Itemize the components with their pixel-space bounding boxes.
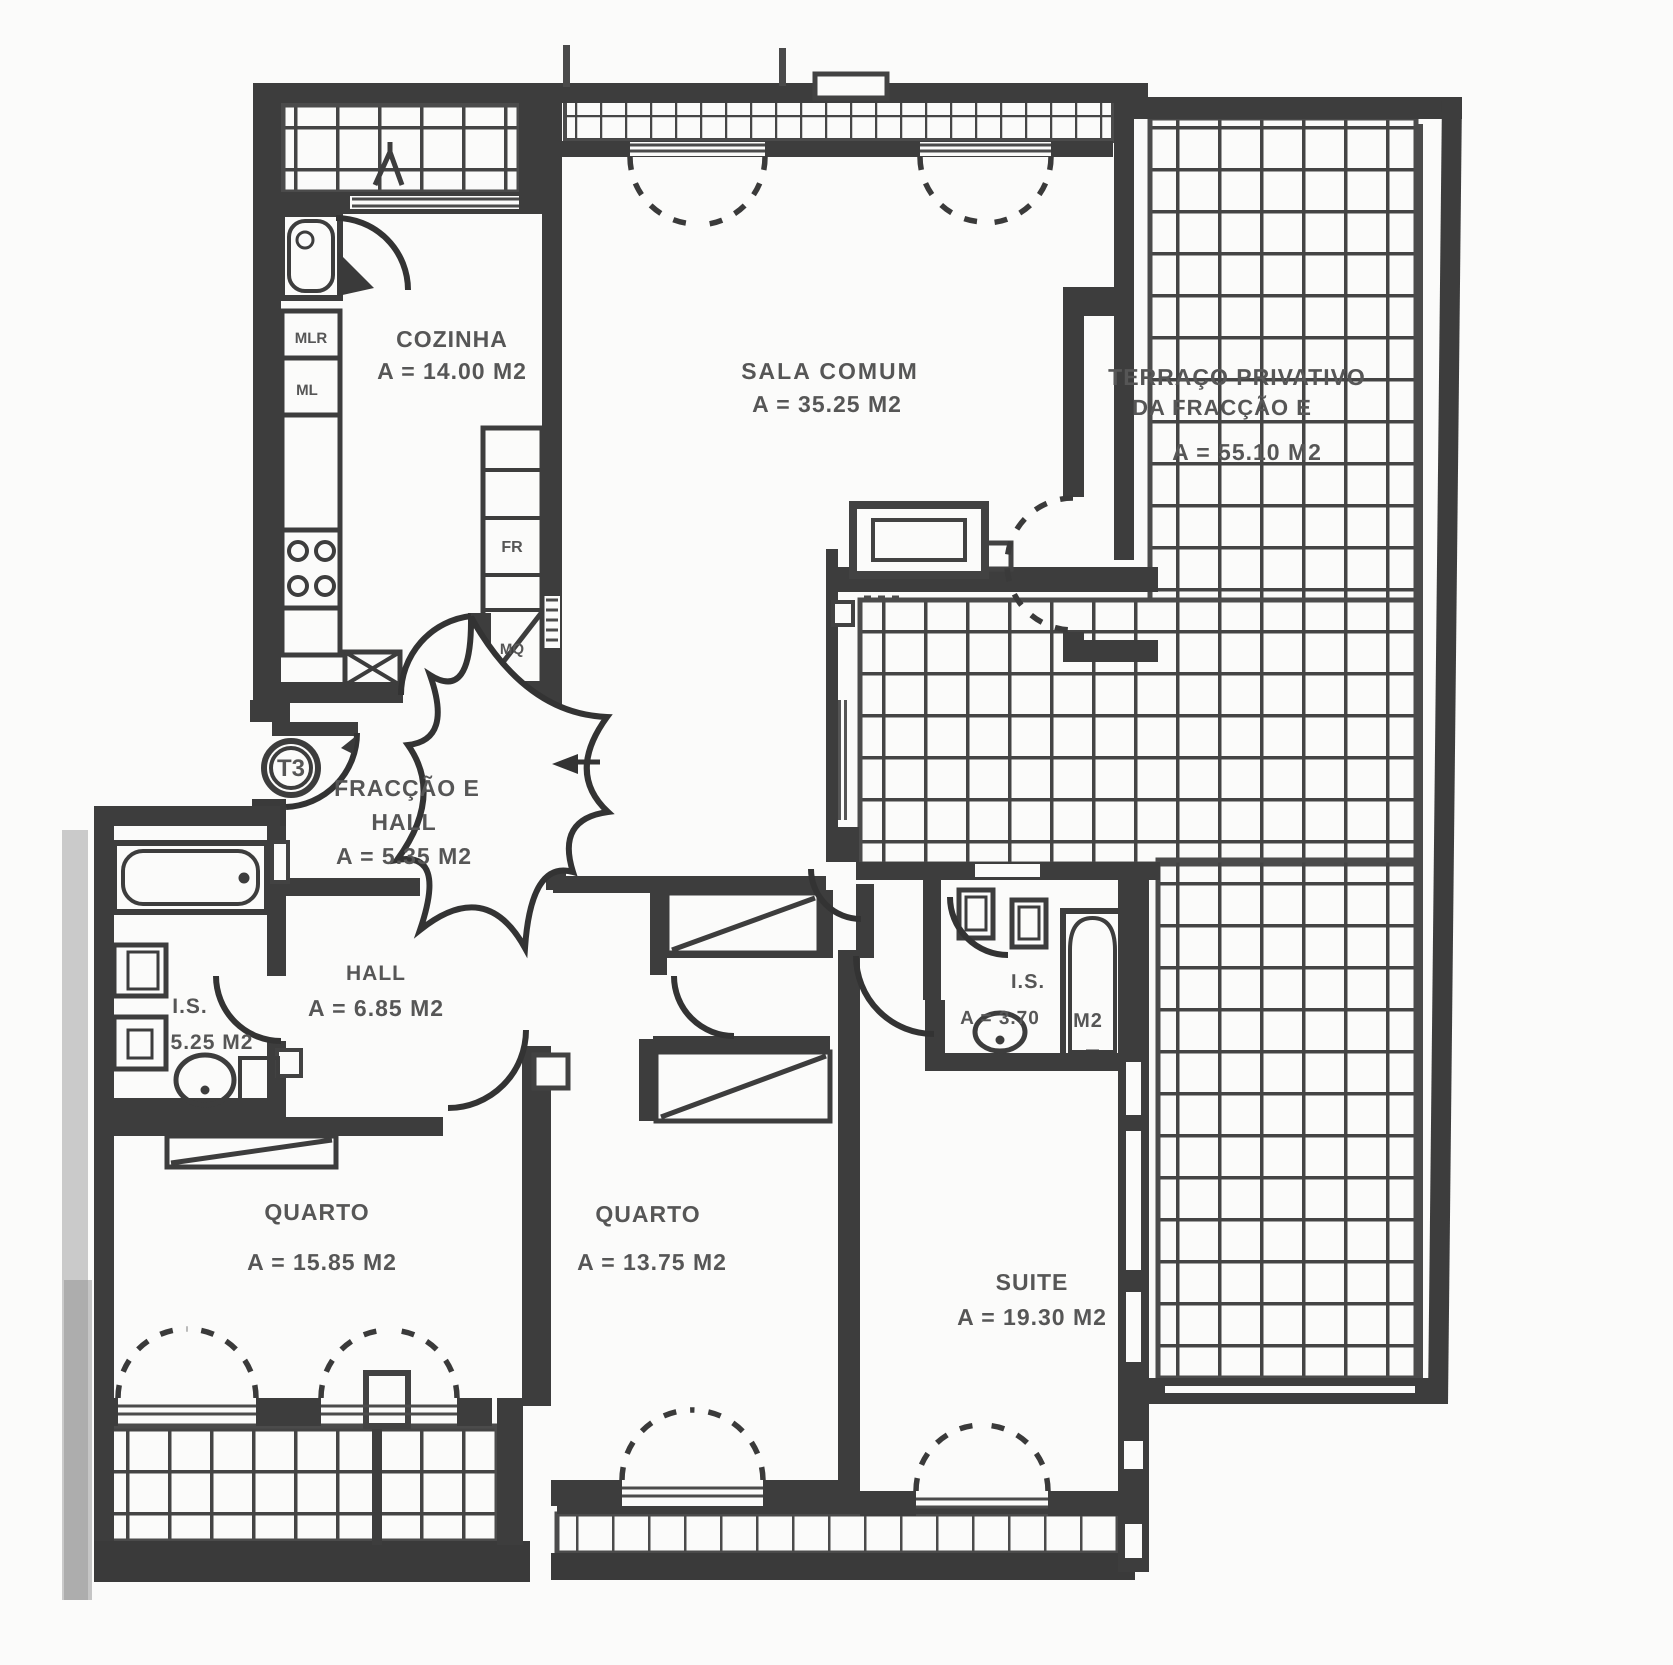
svg-text:QUARTO: QUARTO	[595, 1201, 700, 1227]
svg-text:ML: ML	[296, 382, 318, 399]
svg-text:I.S.: I.S.	[172, 995, 208, 1018]
svg-text:A = 14.00 M2: A = 14.00 M2	[377, 358, 527, 384]
svg-text:A = 3.70: A = 3.70	[960, 1008, 1040, 1029]
svg-text:I.S.: I.S.	[1011, 971, 1045, 993]
svg-text:T3: T3	[277, 755, 305, 782]
svg-text:FR: FR	[501, 539, 523, 556]
svg-text:5.25 M2: 5.25 M2	[171, 1031, 254, 1054]
svg-text:HALL: HALL	[346, 962, 406, 985]
svg-text:HALL: HALL	[371, 809, 436, 835]
svg-text:DA FRACÇÃO E: DA FRACÇÃO E	[1132, 395, 1312, 420]
svg-text:SALA COMUM: SALA COMUM	[741, 358, 919, 384]
svg-text:MLR: MLR	[295, 330, 328, 347]
svg-text:A = 19.30 M2: A = 19.30 M2	[957, 1304, 1107, 1330]
svg-text:A = 35.25 M2: A = 35.25 M2	[752, 391, 902, 417]
svg-text:A = 13.75 M2: A = 13.75 M2	[577, 1249, 727, 1275]
svg-text:MQ: MQ	[500, 641, 524, 658]
svg-text:TERRAÇO PRIVATIVO: TERRAÇO PRIVATIVO	[1108, 364, 1366, 390]
svg-text:A = 5.35 M2: A = 5.35 M2	[336, 843, 472, 869]
svg-text:SUITE: SUITE	[996, 1269, 1069, 1295]
svg-text:A = 15.85 M2: A = 15.85 M2	[247, 1249, 397, 1275]
svg-text:A = 6.85 M2: A = 6.85 M2	[308, 995, 444, 1021]
svg-text:QUARTO: QUARTO	[264, 1199, 369, 1225]
svg-text:M2: M2	[1073, 1010, 1103, 1032]
svg-text:COZINHA: COZINHA	[396, 326, 508, 352]
svg-text:FRACÇÃO E: FRACÇÃO E	[334, 775, 480, 801]
svg-text:A = 55.10 M2: A = 55.10 M2	[1172, 439, 1322, 465]
